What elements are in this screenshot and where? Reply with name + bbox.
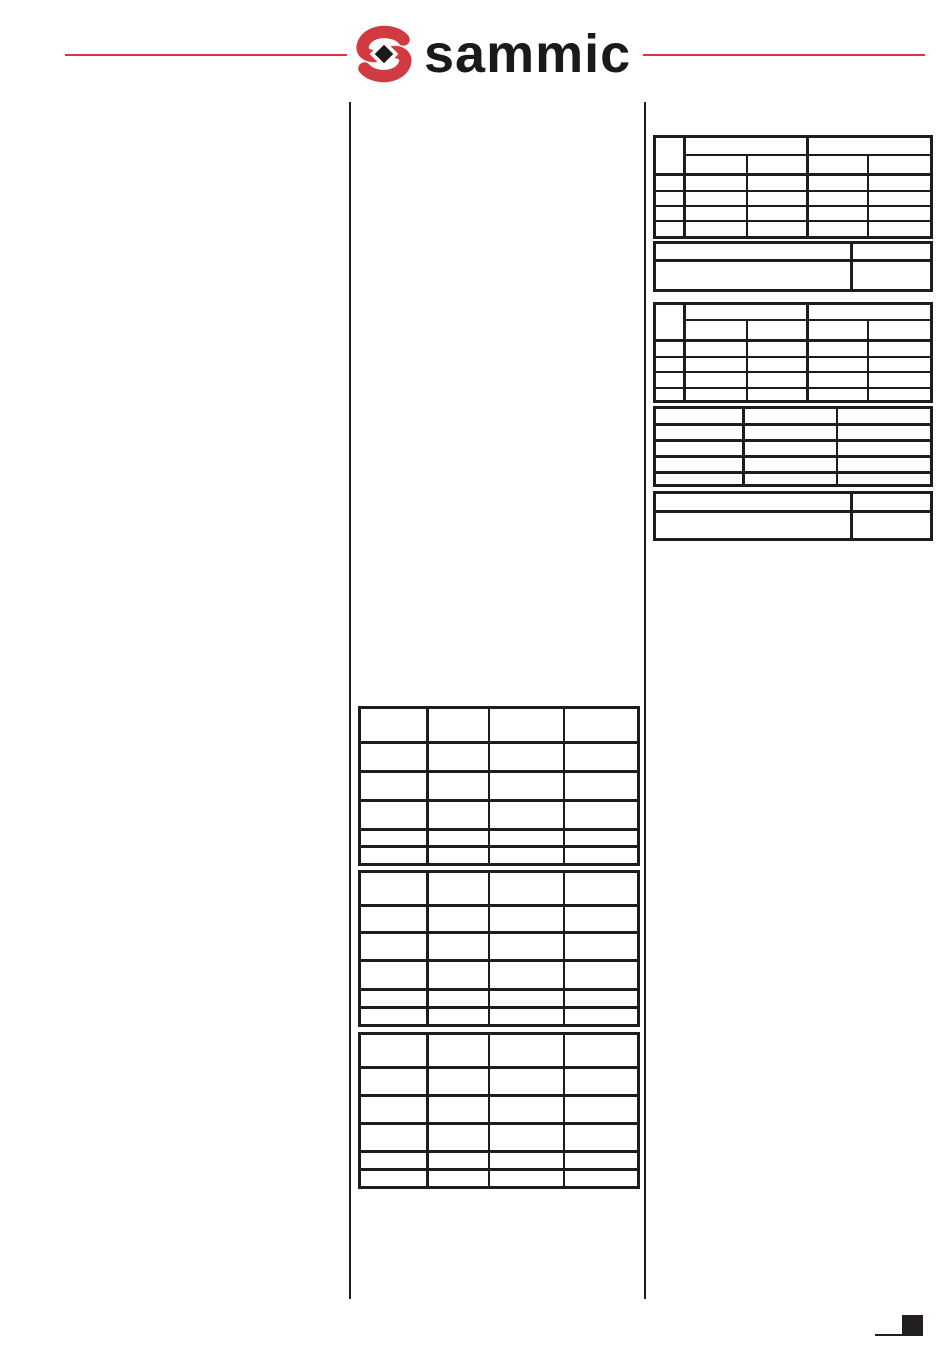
table-cell [868, 388, 932, 402]
table-cell [360, 933, 428, 961]
table-cell [489, 1068, 564, 1096]
right-spec-table-1 [653, 135, 933, 239]
table-cell [360, 961, 428, 990]
table-cell [808, 191, 868, 206]
table-cell [428, 801, 489, 830]
table-cell [489, 1152, 564, 1170]
table-cell [360, 1008, 428, 1026]
table-cell [428, 906, 489, 933]
table-cell [837, 473, 932, 486]
table-cell [655, 261, 852, 291]
table-cell [489, 1008, 564, 1026]
table-cell [564, 830, 639, 847]
table-cell [808, 320, 868, 341]
table-cell [360, 872, 428, 906]
table-cell [564, 743, 639, 772]
table-cell [360, 801, 428, 830]
table-cell [868, 206, 932, 221]
table-cell [489, 743, 564, 772]
table-cell [655, 341, 685, 357]
table-cell [808, 206, 868, 221]
table-cell [428, 1096, 489, 1124]
table-cell [564, 1034, 639, 1068]
table-cell [360, 1096, 428, 1124]
table-cell [489, 906, 564, 933]
table-cell [360, 1152, 428, 1170]
table-cell [868, 372, 932, 388]
table-cell [428, 1008, 489, 1026]
table-cell [655, 457, 744, 473]
table-cell [564, 961, 639, 990]
table-cell [655, 512, 852, 540]
table-cell [564, 1124, 639, 1152]
page: sammic [0, 0, 950, 1353]
sammic-logo-icon [350, 25, 418, 83]
header-rule-right [643, 54, 925, 56]
table-cell [489, 990, 564, 1008]
table-cell [685, 341, 747, 357]
table-cell [655, 304, 685, 341]
table-cell [564, 1008, 639, 1026]
table-cell [360, 1124, 428, 1152]
table-cell [685, 137, 808, 155]
center-table-2 [358, 870, 640, 1027]
table-cell [685, 372, 747, 388]
table-cell [808, 357, 868, 372]
table-cell [852, 243, 932, 261]
table-cell [852, 493, 932, 512]
table-cell [655, 357, 685, 372]
table-cell [489, 801, 564, 830]
table-cell [685, 175, 747, 191]
table-cell [564, 708, 639, 743]
table-cell [837, 441, 932, 457]
table-cell [808, 372, 868, 388]
table-cell [744, 408, 837, 425]
page-number-marker [902, 1315, 923, 1336]
table-cell [868, 175, 932, 191]
table-cell [747, 388, 808, 402]
right-note-table-2 [653, 491, 933, 541]
table-cell [489, 933, 564, 961]
table-cell [489, 1124, 564, 1152]
footer-rule [875, 1334, 903, 1336]
table-cell [428, 1170, 489, 1188]
table-cell [489, 872, 564, 906]
table-cell [747, 372, 808, 388]
right-spec-table-2 [653, 302, 933, 403]
table-cell [837, 425, 932, 441]
table-cell [360, 990, 428, 1008]
table-cell [685, 206, 747, 221]
table-cell [655, 408, 744, 425]
table-cell [564, 872, 639, 906]
table-cell [564, 933, 639, 961]
table-cell [360, 1034, 428, 1068]
table-cell [744, 441, 837, 457]
table-cell [747, 155, 808, 175]
table-cell [655, 441, 744, 457]
table-cell [808, 304, 932, 320]
table-cell [868, 191, 932, 206]
table-cell [564, 1152, 639, 1170]
table-cell [685, 155, 747, 175]
table-cell [428, 830, 489, 847]
brand-wordmark: sammic [424, 24, 631, 84]
table-cell [428, 1124, 489, 1152]
table-cell [868, 357, 932, 372]
table-cell [489, 1170, 564, 1188]
table-cell [360, 772, 428, 801]
table-cell [428, 708, 489, 743]
table-cell [837, 408, 932, 425]
table-cell [428, 961, 489, 990]
table-cell [360, 830, 428, 847]
table-cell [655, 191, 685, 206]
table-cell [747, 206, 808, 221]
table-cell [685, 304, 808, 320]
table-cell [564, 906, 639, 933]
table-cell [428, 1152, 489, 1170]
header-rule-left [65, 54, 347, 56]
table-cell [685, 320, 747, 341]
table-cell [744, 425, 837, 441]
table-cell [868, 320, 932, 341]
table-cell [428, 933, 489, 961]
table-cell [489, 961, 564, 990]
table-cell [808, 341, 868, 357]
table-cell [808, 137, 932, 155]
table-cell [489, 1034, 564, 1068]
table-cell [744, 457, 837, 473]
table-cell [428, 872, 489, 906]
table-cell [564, 1170, 639, 1188]
table-cell [868, 341, 932, 357]
table-cell [655, 388, 685, 402]
table-cell [655, 175, 685, 191]
table-cell [360, 1170, 428, 1188]
table-cell [868, 155, 932, 175]
table-cell [747, 341, 808, 357]
table-cell [564, 847, 639, 865]
table-cell [564, 772, 639, 801]
table-cell [655, 425, 744, 441]
column-divider-left [349, 102, 351, 1299]
table-cell [428, 847, 489, 865]
table-cell [428, 990, 489, 1008]
table-cell [360, 1068, 428, 1096]
table-cell [564, 801, 639, 830]
table-cell [428, 772, 489, 801]
table-cell [747, 357, 808, 372]
table-cell [685, 221, 747, 238]
table-cell [685, 388, 747, 402]
table-cell [655, 473, 744, 486]
table-cell [744, 473, 837, 486]
table-cell [655, 372, 685, 388]
table-cell [655, 206, 685, 221]
table-cell [489, 830, 564, 847]
column-divider-right [644, 102, 646, 1299]
table-cell [837, 457, 932, 473]
table-cell [360, 743, 428, 772]
table-cell [655, 493, 852, 512]
table-cell [360, 708, 428, 743]
table-cell [428, 743, 489, 772]
table-cell [428, 1034, 489, 1068]
table-cell [360, 906, 428, 933]
table-cell [489, 1096, 564, 1124]
table-cell [685, 191, 747, 206]
table-cell [747, 191, 808, 206]
table-cell [564, 1096, 639, 1124]
table-cell [489, 708, 564, 743]
table-cell [808, 388, 868, 402]
center-table-3 [358, 1032, 640, 1189]
table-cell [685, 357, 747, 372]
table-cell [808, 221, 868, 238]
table-cell [808, 175, 868, 191]
table-cell [808, 155, 868, 175]
table-cell [868, 221, 932, 238]
table-cell [428, 1068, 489, 1096]
table-cell [655, 221, 685, 238]
table-cell [747, 221, 808, 238]
table-cell [360, 847, 428, 865]
center-table-1 [358, 706, 640, 866]
table-cell [489, 847, 564, 865]
right-three-col-table [653, 406, 933, 487]
table-cell [489, 772, 564, 801]
table-cell [655, 243, 852, 261]
table-cell [747, 175, 808, 191]
table-cell [852, 512, 932, 540]
table-cell [852, 261, 932, 291]
table-cell [747, 320, 808, 341]
table-cell [564, 990, 639, 1008]
right-note-table-1 [653, 241, 933, 292]
table-cell [564, 1068, 639, 1096]
table-cell [655, 137, 685, 175]
